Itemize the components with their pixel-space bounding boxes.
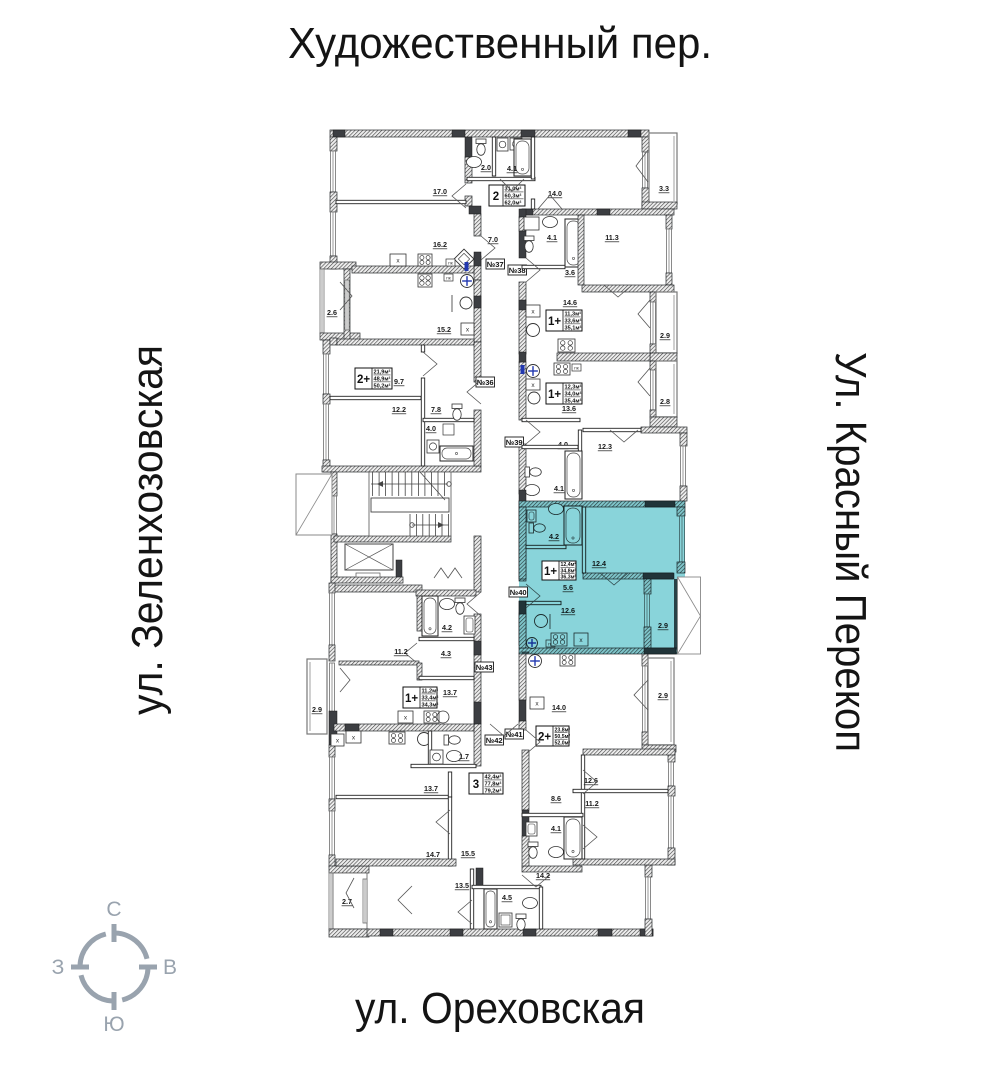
svg-text:4.5: 4.5 [502, 893, 512, 902]
svg-text:пк: пк [446, 275, 450, 280]
svg-text:11.2: 11.2 [394, 647, 408, 656]
svg-text:13.7: 13.7 [443, 688, 457, 697]
svg-text:14.2: 14.2 [536, 871, 550, 880]
svg-text:№41: №41 [506, 730, 524, 739]
svg-text:11,3м²: 11,3м² [565, 311, 582, 318]
svg-text:77,8м²: 77,8м² [485, 781, 502, 788]
svg-text:60,3м²: 60,3м² [505, 193, 522, 200]
svg-text:ул. Зеленхозовская: ул. Зеленхозовская [123, 345, 172, 715]
svg-text:4.1: 4.1 [547, 233, 557, 242]
svg-text:13.5: 13.5 [455, 881, 469, 890]
svg-text:35,1м²: 35,1м² [565, 325, 582, 332]
svg-text:62,0м²: 62,0м² [505, 200, 522, 207]
svg-text:2.8: 2.8 [660, 397, 670, 406]
svg-text:Ул. Красный Перекоп: Ул. Красный Перекоп [826, 352, 875, 752]
svg-text:1+: 1+ [405, 693, 418, 705]
svg-text:4.1: 4.1 [551, 824, 561, 833]
svg-text:11,2м²: 11,2м² [422, 688, 439, 695]
svg-text:34,0м²: 34,0м² [565, 391, 582, 398]
svg-text:ул. Ореховская: ул. Ореховская [355, 984, 645, 1033]
svg-text:4.3: 4.3 [441, 649, 451, 658]
svg-text:1.7: 1.7 [459, 752, 469, 761]
svg-text:12.2: 12.2 [392, 405, 406, 414]
svg-text:В: В [163, 956, 177, 979]
svg-text:52,0м²: 52,0м² [555, 741, 571, 747]
svg-text:1+: 1+ [544, 566, 557, 578]
svg-text:48,9м²: 48,9м² [374, 376, 391, 383]
svg-text:14.7: 14.7 [426, 850, 440, 859]
svg-text:№37: №37 [487, 260, 504, 269]
svg-text:33,4м²: 33,4м² [422, 695, 439, 702]
svg-text:15.2: 15.2 [437, 325, 451, 334]
svg-text:79,2м²: 79,2м² [485, 788, 502, 795]
svg-text:З: З [52, 956, 65, 979]
svg-text:9.7: 9.7 [394, 377, 404, 386]
svg-text:12,3м²: 12,3м² [565, 384, 582, 391]
svg-text:№40: №40 [510, 588, 527, 597]
svg-text:15.5: 15.5 [461, 849, 475, 858]
svg-text:16.2: 16.2 [433, 240, 447, 249]
svg-text:2.6: 2.6 [327, 308, 337, 317]
svg-text:4.2: 4.2 [442, 623, 452, 632]
svg-text:№39: №39 [506, 438, 523, 447]
svg-text:Ю: Ю [103, 1013, 124, 1036]
svg-text:7.8: 7.8 [431, 405, 441, 414]
svg-text:8.6: 8.6 [551, 794, 561, 803]
svg-text:21,9м²: 21,9м² [374, 369, 391, 376]
svg-text:4.1: 4.1 [507, 164, 517, 173]
svg-text:№36: №36 [477, 378, 494, 387]
svg-text:1+: 1+ [548, 316, 561, 328]
svg-text:33,6м²: 33,6м² [565, 318, 582, 325]
svg-text:17.0: 17.0 [433, 187, 447, 196]
svg-text:4.0: 4.0 [426, 424, 436, 433]
svg-text:№42: №42 [486, 736, 503, 745]
svg-text:42,4м²: 42,4м² [485, 774, 502, 781]
svg-text:14.0: 14.0 [548, 189, 562, 198]
svg-text:пк: пк [448, 260, 452, 265]
svg-text:11.2: 11.2 [585, 799, 599, 808]
svg-text:4.1: 4.1 [554, 484, 564, 493]
svg-text:13.7: 13.7 [424, 784, 438, 793]
svg-text:№43: №43 [476, 663, 493, 672]
svg-text:13.6: 13.6 [562, 404, 576, 413]
svg-text:3.6: 3.6 [565, 268, 575, 277]
svg-text:12.3: 12.3 [598, 442, 612, 451]
svg-text:34,3м²: 34,3м² [422, 702, 439, 709]
svg-text:2: 2 [493, 191, 499, 203]
svg-text:2+: 2+ [357, 374, 370, 386]
svg-text:31,0м²: 31,0м² [505, 186, 522, 193]
svg-text:С: С [106, 898, 121, 921]
svg-text:50,2м²: 50,2м² [374, 383, 391, 390]
svg-text:3.3: 3.3 [659, 184, 669, 193]
svg-text:пк: пк [574, 365, 578, 370]
svg-text:2.9: 2.9 [660, 331, 670, 340]
svg-text:3: 3 [473, 779, 479, 791]
svg-text:2.9: 2.9 [658, 691, 668, 700]
svg-text:14.0: 14.0 [552, 703, 566, 712]
svg-text:2.0: 2.0 [481, 163, 491, 172]
svg-text:1+: 1+ [548, 389, 561, 401]
svg-text:14.6: 14.6 [563, 298, 577, 307]
svg-text:11.3: 11.3 [605, 233, 619, 242]
svg-text:36,3м²: 36,3м² [561, 575, 577, 581]
svg-text:Художественный пер.: Художественный пер. [288, 19, 712, 68]
svg-text:7.0: 7.0 [488, 235, 498, 244]
svg-text:2.9: 2.9 [312, 705, 322, 714]
